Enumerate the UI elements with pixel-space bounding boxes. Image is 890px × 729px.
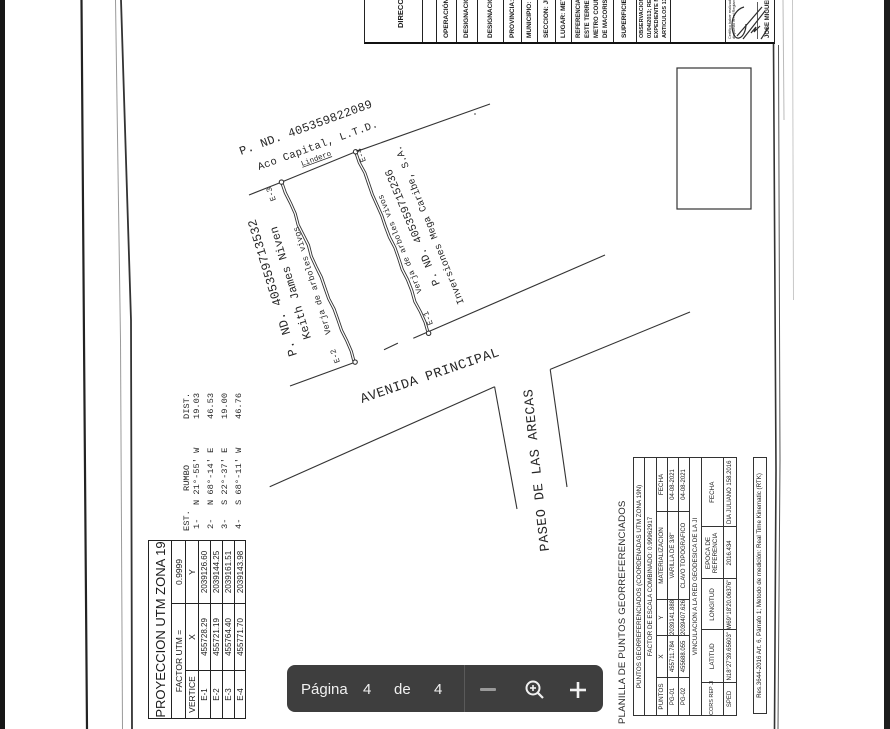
svg-text:E-2: E-2 bbox=[329, 347, 343, 364]
svg-text:AVENIDA PRINCIPAL: AVENIDA PRINCIPAL bbox=[359, 346, 502, 408]
svg-text:PASEO DE LAS ARECAS: PASEO DE LAS ARECAS bbox=[522, 388, 554, 552]
svg-text:PLANILLA DE PUNTOS GEORREFEREN: PLANILLA DE PUNTOS GEORREFERENCIADOS bbox=[617, 501, 628, 724]
